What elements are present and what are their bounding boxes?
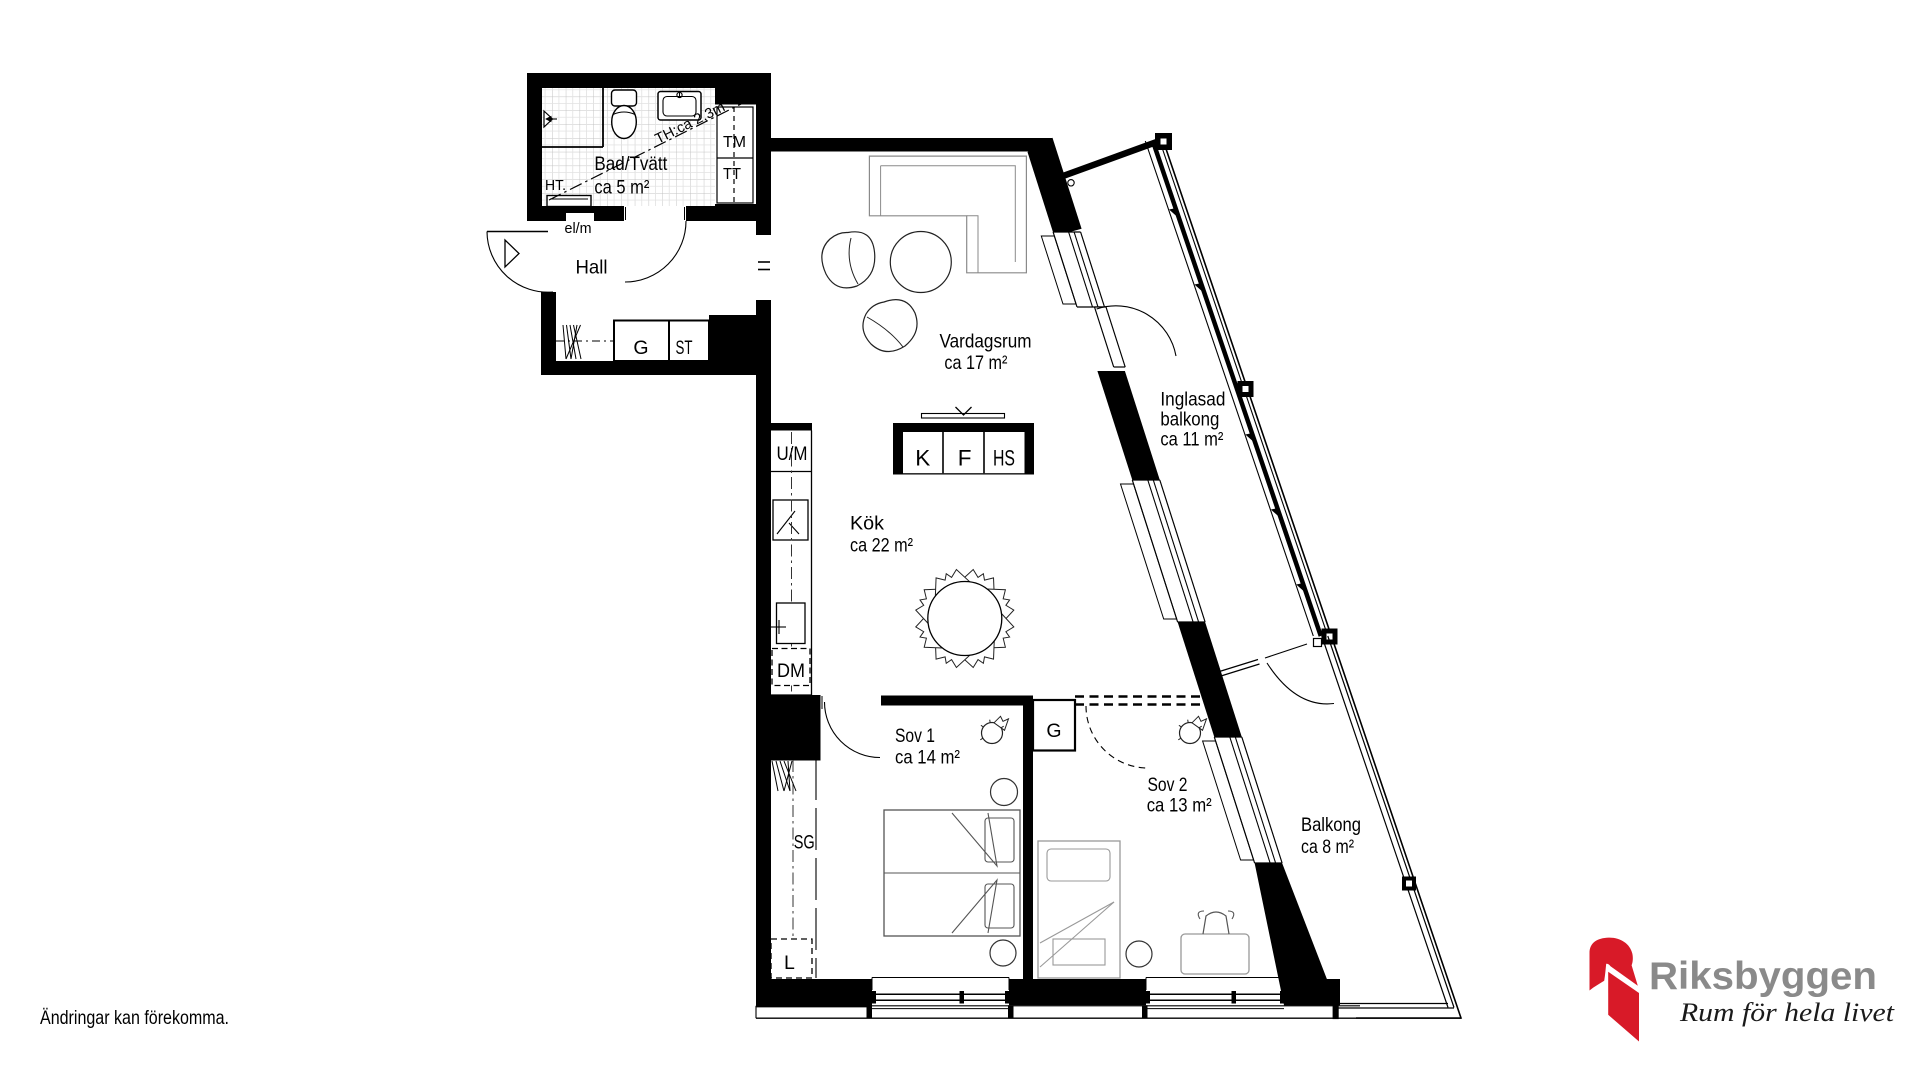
svg-text:HT.: HT. bbox=[545, 178, 566, 194]
svg-text:Bad/Tvätt: Bad/Tvätt bbox=[594, 153, 667, 175]
svg-text:TM: TM bbox=[723, 134, 746, 151]
svg-text:Ändringar kan förekomma.: Ändringar kan förekomma. bbox=[40, 1007, 229, 1029]
svg-text:Kök: Kök bbox=[850, 513, 884, 535]
svg-text:L: L bbox=[784, 952, 795, 974]
svg-text:ca 11 m²: ca 11 m² bbox=[1160, 429, 1223, 451]
svg-text:balkong: balkong bbox=[1160, 409, 1219, 431]
svg-text:TT: TT bbox=[723, 166, 742, 183]
svg-text:G: G bbox=[1046, 720, 1061, 742]
svg-text:ca 14 m²: ca 14 m² bbox=[895, 747, 960, 769]
svg-text:U/M: U/M bbox=[777, 443, 808, 465]
svg-text:F: F bbox=[958, 446, 972, 471]
svg-text:DM: DM bbox=[777, 660, 805, 682]
svg-text:ca 17 m²: ca 17 m² bbox=[944, 352, 1007, 374]
svg-text:G: G bbox=[633, 337, 648, 359]
svg-text:Rum för hela livet: Rum för hela livet bbox=[1679, 998, 1895, 1027]
svg-text:ca 22 m²: ca 22 m² bbox=[850, 535, 913, 557]
svg-text:Riksbyggen: Riksbyggen bbox=[1649, 955, 1877, 998]
svg-text:ca 13 m²: ca 13 m² bbox=[1147, 795, 1212, 817]
svg-text:el/m: el/m bbox=[565, 221, 592, 237]
svg-text:Hall: Hall bbox=[576, 257, 608, 279]
svg-text:K: K bbox=[915, 446, 930, 471]
svg-text:ca 5 m²: ca 5 m² bbox=[594, 177, 649, 199]
svg-text:ST: ST bbox=[676, 337, 693, 359]
svg-text:Inglasad: Inglasad bbox=[1160, 389, 1225, 411]
svg-text:Sov 1: Sov 1 bbox=[895, 725, 935, 747]
svg-text:HS: HS bbox=[993, 446, 1015, 471]
svg-text:ca 8 m²: ca 8 m² bbox=[1301, 836, 1354, 858]
svg-text:SG: SG bbox=[794, 832, 815, 854]
svg-text:Sov 2: Sov 2 bbox=[1148, 774, 1188, 796]
svg-text:Balkong: Balkong bbox=[1301, 814, 1361, 836]
svg-text:Vardagsrum: Vardagsrum bbox=[940, 330, 1032, 352]
